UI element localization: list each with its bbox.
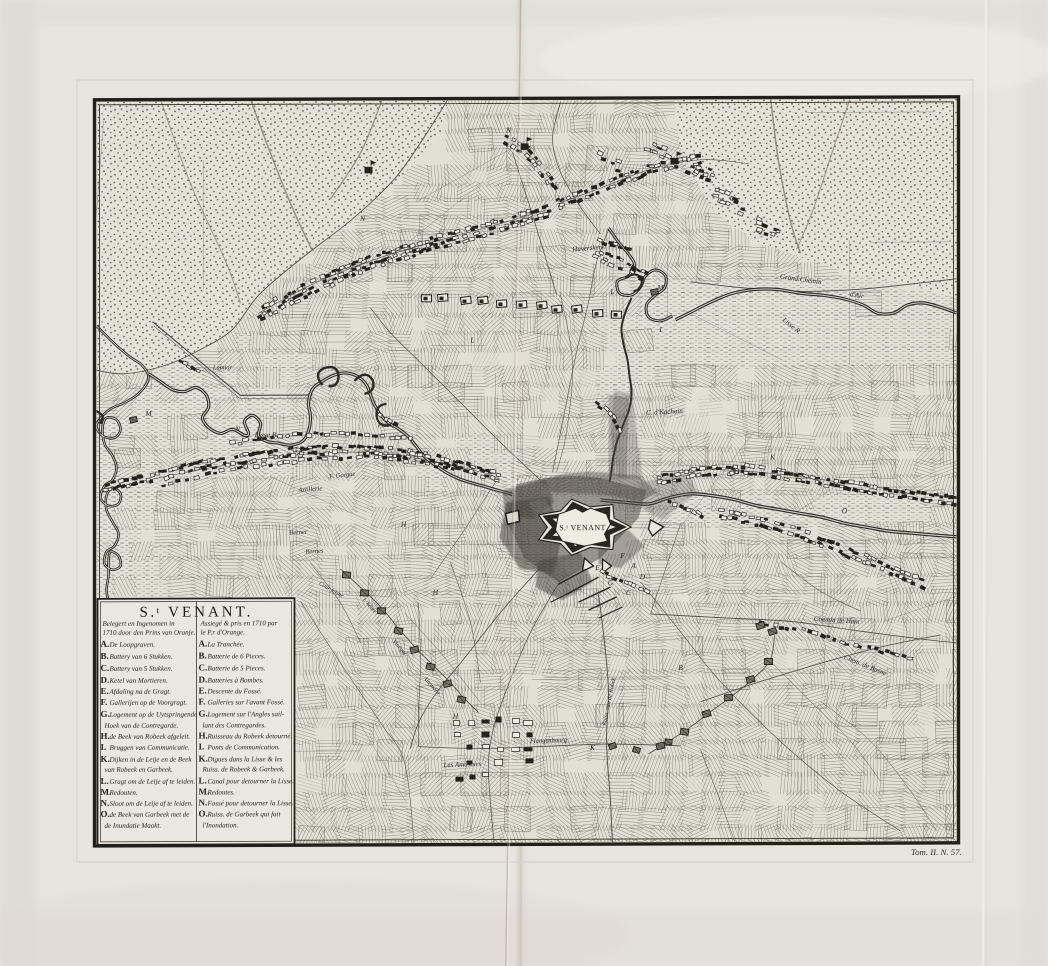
- svg-text:La Tranchée.: La Tranchée.: [207, 640, 245, 648]
- svg-text:H.: H.: [199, 730, 208, 740]
- svg-text:L: L: [609, 287, 614, 296]
- svg-text:Lamior: Lamior: [212, 364, 233, 371]
- svg-text:Fossé pour detourner la Lisse.: Fossé pour detourner la Lisse.: [207, 799, 294, 807]
- svg-text:S.t VENANT.: S.t VENANT.: [140, 604, 254, 620]
- svg-text:I.: I.: [199, 741, 205, 751]
- svg-text:Ponts de Communication.: Ponts de Communication.: [207, 743, 281, 751]
- svg-text:F: F: [619, 551, 625, 560]
- svg-text:Redouten.: Redouten.: [109, 789, 138, 797]
- svg-text:C.: C.: [101, 663, 110, 673]
- svg-text:G: G: [608, 578, 614, 587]
- svg-text:de Beek van Robeek afgeleit.: de Beek van Robeek afgeleit.: [110, 733, 191, 741]
- svg-text:Gallerijen op de Voorgragt.: Gallerijen op de Voorgragt.: [110, 699, 188, 707]
- svg-text:Galleries sur l'avant Fossé.: Galleries sur l'avant Fossé.: [208, 698, 286, 706]
- svg-text:Lisse B.: Lisse B.: [254, 430, 279, 439]
- svg-text:Canal pour detourner la Lisse.: Canal pour detourner la Lisse.: [208, 777, 295, 785]
- svg-text:Flangenbourg: Flangenbourg: [529, 737, 568, 745]
- svg-text:le P.r d'Orange.: le P.r d'Orange.: [201, 628, 246, 636]
- svg-text:N: N: [359, 214, 366, 223]
- svg-text:de Inundatie Maakt.: de Inundatie Maakt.: [105, 822, 162, 830]
- svg-text:Descente du Fossé.: Descente du Fossé.: [207, 687, 262, 695]
- svg-text:E.: E.: [199, 685, 207, 695]
- svg-text:I: I: [658, 325, 662, 334]
- svg-text:F.: F.: [199, 696, 206, 706]
- svg-text:F.: F.: [101, 697, 108, 707]
- svg-text:O: O: [842, 506, 848, 515]
- svg-text:Assiegé & pris en 1710 par: Assiegé & pris en 1710 par: [200, 619, 278, 627]
- svg-text:Ruisseau du Robeek detourné.: Ruisseau du Robeek detourné.: [207, 732, 293, 740]
- svg-text:Batterie de 6 Pieces.: Batterie de 6 Pieces.: [208, 652, 266, 660]
- svg-text:N: N: [505, 125, 512, 134]
- svg-text:Sloot om de Leije af te leiden: Sloot om de Leije af te leiden.: [110, 800, 194, 808]
- svg-text:Bernes: Bernes: [305, 548, 324, 556]
- svg-text:Batterie de 5 Pieces.: Batterie de 5 Pieces.: [208, 664, 266, 672]
- svg-text:G.: G.: [199, 708, 208, 718]
- svg-text:B.: B.: [101, 651, 109, 661]
- svg-text:Digues dans la Lisse & les: Digues dans la Lisse & les: [207, 755, 283, 763]
- svg-text:L.: L.: [101, 776, 109, 786]
- svg-text:Berner: Berner: [289, 529, 308, 537]
- svg-text:Batteries à Bombes.: Batteries à Bombes.: [208, 676, 264, 684]
- svg-text:Redoutes.: Redoutes.: [207, 788, 236, 796]
- svg-text:B.: B.: [199, 650, 207, 660]
- svg-text:Battery van 6 Stukken.: Battery van 6 Stukken.: [110, 653, 173, 661]
- svg-text:Dijken in de Leije en de Beek: Dijken in de Leije en de Beek: [109, 756, 193, 764]
- svg-text:D.: D.: [101, 675, 110, 685]
- svg-text:B: B: [678, 663, 683, 672]
- svg-text:Afdaling na de Gragt.: Afdaling na de Gragt.: [109, 688, 172, 696]
- svg-text:van Robeek en Garbeek.: van Robeek en Garbeek.: [105, 766, 174, 774]
- svg-text:O.: O.: [101, 809, 110, 819]
- svg-text:H: H: [452, 712, 459, 721]
- svg-text:H: H: [432, 588, 439, 597]
- svg-text:K.: K.: [199, 753, 208, 763]
- svg-text:E.: E.: [101, 686, 109, 696]
- svg-text:K: K: [589, 743, 596, 752]
- svg-text:L.: L.: [199, 775, 207, 785]
- svg-text:H: H: [400, 520, 407, 529]
- svg-text:lant des Contregardes.: lant des Contregardes.: [203, 721, 267, 729]
- svg-text:I.: I.: [101, 742, 107, 752]
- svg-text:K.: K.: [101, 754, 110, 764]
- svg-text:Belegert en Ingenomen in: Belegert en Ingenomen in: [103, 620, 176, 628]
- svg-text:Bruggen van Communicatie.: Bruggen van Communicatie.: [110, 744, 191, 752]
- svg-text:O: O: [734, 467, 740, 476]
- svg-text:1710 door den Prins van Oranje: 1710 door den Prins van Oranje.: [103, 629, 196, 637]
- svg-text:Fleury: Fleury: [377, 421, 396, 429]
- svg-text:Tom. II. N. 57.: Tom. II. N. 57.: [911, 847, 962, 857]
- svg-text:G.: G.: [101, 709, 110, 719]
- svg-text:M: M: [144, 409, 152, 418]
- svg-text:Logement sur l'Angles sail-: Logement sur l'Angles sail-: [207, 710, 285, 718]
- svg-text:H.: H.: [101, 731, 110, 741]
- svg-text:L: L: [469, 336, 474, 345]
- svg-text:Gragt om de Leije af te leiden: Gragt om de Leije af te leiden.: [110, 778, 196, 786]
- svg-text:De Loopgraven.: De Loopgraven.: [109, 641, 156, 649]
- svg-text:D: D: [639, 572, 646, 581]
- svg-text:D.: D.: [199, 674, 208, 684]
- svg-text:K: K: [769, 452, 776, 461]
- svg-text:l'Inondation.: l'Inondation.: [203, 821, 239, 829]
- svg-text:S.t VENANT: S.t VENANT: [559, 523, 606, 532]
- svg-text:N.: N.: [101, 798, 110, 808]
- svg-text:Hoek van de Contregarde.: Hoek van de Contregarde.: [104, 722, 179, 730]
- svg-text:N.: N.: [199, 797, 208, 807]
- svg-text:A.: A.: [101, 639, 110, 649]
- svg-text:A: A: [630, 561, 636, 570]
- svg-text:Battery van 5 Stukken.: Battery van 5 Stukken.: [110, 665, 173, 673]
- svg-text:Ruiss. de Robeek & Garbeek.: Ruiss. de Robeek & Garbeek.: [202, 765, 286, 773]
- svg-text:O.: O.: [199, 808, 208, 818]
- svg-text:N: N: [234, 424, 241, 433]
- svg-text:de Beek van Garbeek met de: de Beek van Garbeek met de: [110, 811, 190, 819]
- svg-text:Ketel van Mortieren.: Ketel van Mortieren.: [109, 677, 169, 685]
- svg-text:A.: A.: [199, 638, 208, 648]
- svg-text:Les Amusoirs: Les Amusoirs: [442, 760, 481, 769]
- svg-text:Logement op de Uytspringende: Logement op de Uytspringende: [109, 711, 198, 719]
- svg-text:Ruiss. de Garbeek qui fait: Ruiss. de Garbeek qui fait: [207, 810, 282, 818]
- svg-text:C.: C.: [199, 662, 208, 672]
- svg-text:M: M: [656, 283, 664, 292]
- svg-text:E: E: [594, 563, 600, 572]
